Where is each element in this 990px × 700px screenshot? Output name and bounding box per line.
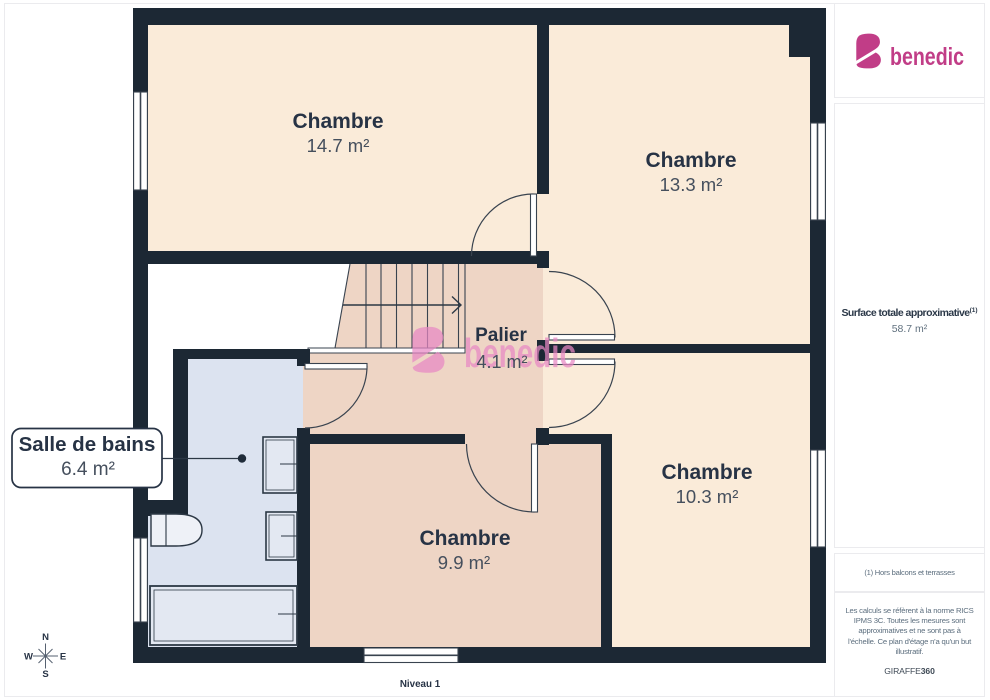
svg-text:N: N <box>42 632 49 643</box>
svg-text:13.3 m²: 13.3 m² <box>660 174 723 195</box>
svg-text:benedic: benedic <box>890 43 964 71</box>
svg-text:E: E <box>60 652 66 663</box>
svg-text:9.9 m²: 9.9 m² <box>438 552 490 573</box>
svg-text:W: W <box>24 652 33 663</box>
svg-text:Palier: Palier <box>475 325 527 346</box>
svg-text:Chambre: Chambre <box>645 149 736 172</box>
svg-text:14.7 m²: 14.7 m² <box>307 135 370 156</box>
svg-text:Salle de bains: Salle de bains <box>19 433 156 456</box>
svg-text:Niveau 1: Niveau 1 <box>400 679 441 690</box>
svg-text:10.3 m²: 10.3 m² <box>676 486 739 507</box>
svg-text:Chambre: Chambre <box>661 461 752 484</box>
svg-text:4.1 m²: 4.1 m² <box>476 352 527 372</box>
svg-text:6.4 m²: 6.4 m² <box>61 459 115 480</box>
svg-text:Chambre: Chambre <box>419 527 510 550</box>
svg-text:S: S <box>42 669 48 680</box>
svg-text:Chambre: Chambre <box>292 110 383 133</box>
